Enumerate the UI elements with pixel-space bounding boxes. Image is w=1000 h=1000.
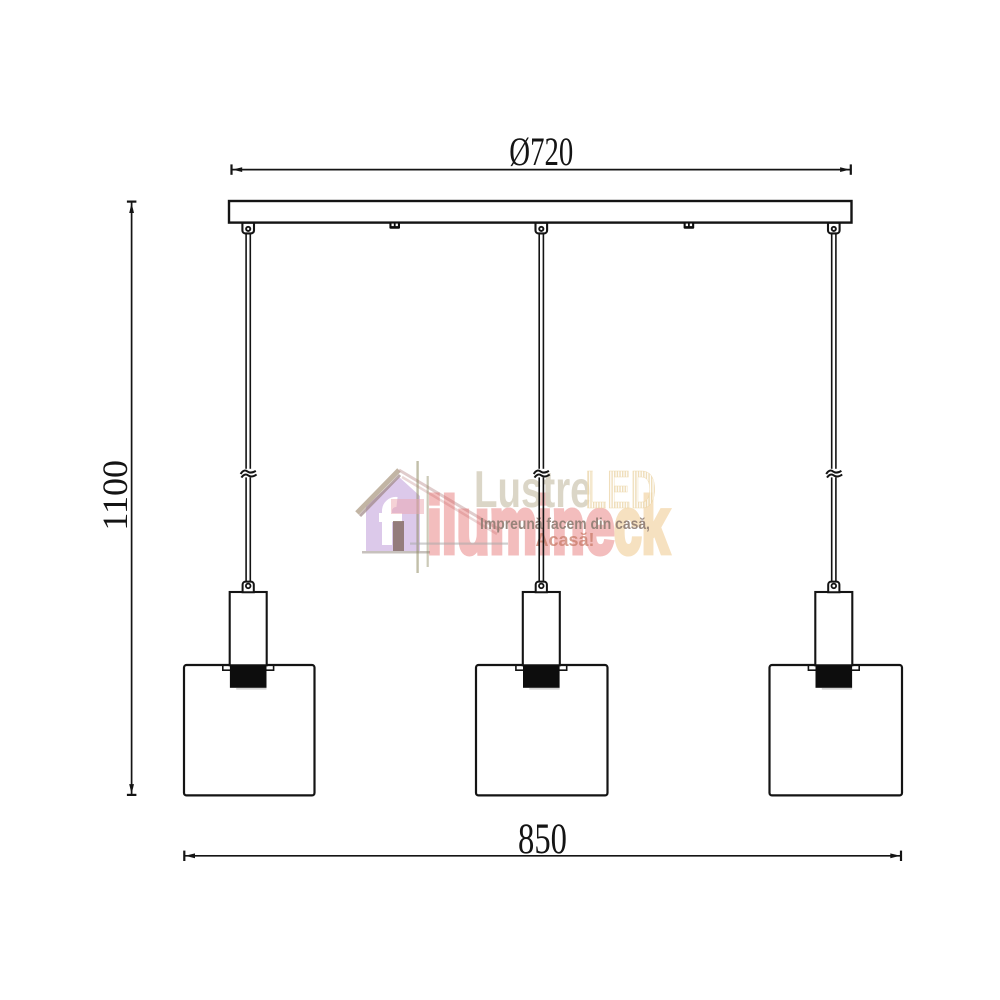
svg-text:Ø720: Ø720 bbox=[509, 129, 573, 174]
svg-text:LED: LED bbox=[585, 460, 656, 520]
svg-text:Lustre: Lustre bbox=[474, 460, 592, 518]
svg-text:1100: 1100 bbox=[95, 460, 135, 531]
svg-text:Acasă!: Acasă! bbox=[535, 530, 594, 550]
svg-text:850: 850 bbox=[518, 816, 567, 864]
